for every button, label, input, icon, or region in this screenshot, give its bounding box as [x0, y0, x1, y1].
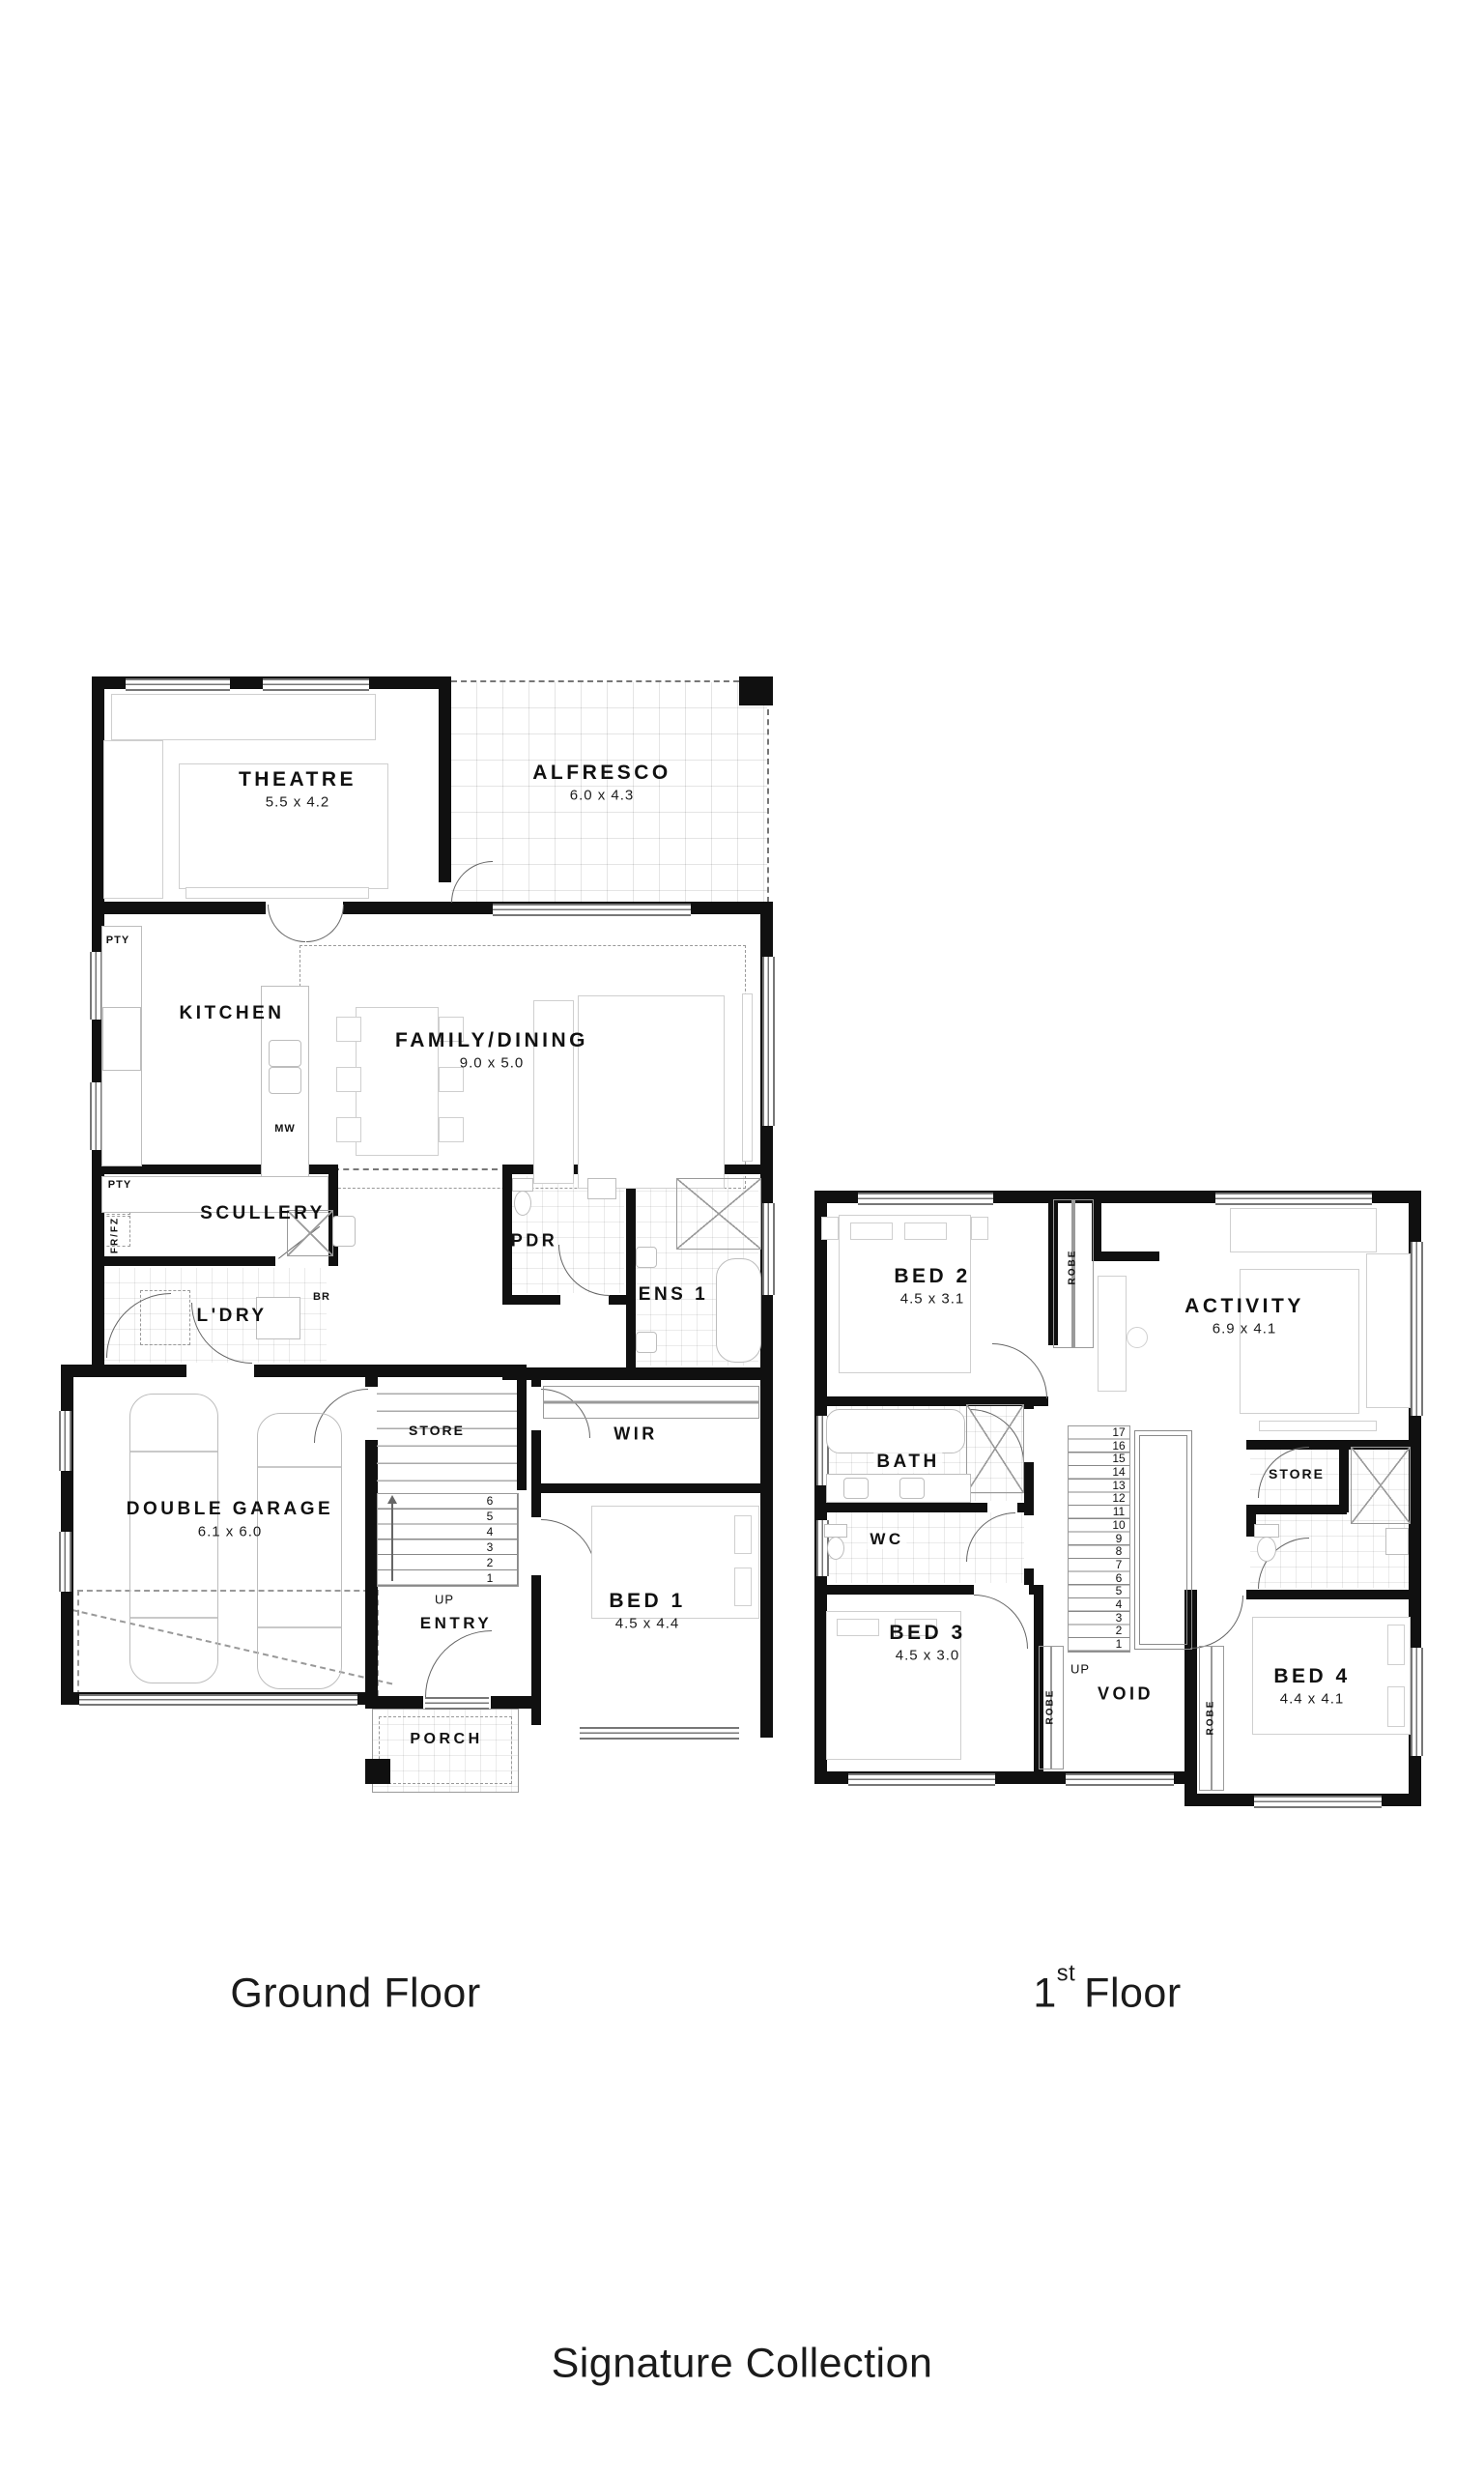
- stair-number: 4: [487, 1525, 494, 1539]
- porch-ceiling-line: [379, 1716, 512, 1784]
- room-label-family-dining: FAMILY/DINING: [395, 1029, 588, 1052]
- ens1-bathtub: [716, 1258, 761, 1363]
- room-label-alfresco: ALFRESCO: [532, 762, 671, 785]
- wall-segment: [531, 1483, 773, 1493]
- tv-unit: [742, 993, 753, 1162]
- wall-segment: [1024, 1462, 1034, 1515]
- stair-number: 11: [1113, 1505, 1125, 1518]
- wall-segment: [365, 1696, 423, 1709]
- bedside-table: [821, 1217, 839, 1240]
- wall-segment: [1017, 1503, 1024, 1512]
- alfresco-post: [739, 676, 773, 705]
- front-door-panel: [425, 1697, 489, 1710]
- stair-number: 2: [487, 1556, 494, 1569]
- wall-segment: [531, 1493, 541, 1517]
- room-label-pdr: PDR: [511, 1231, 558, 1251]
- stair-number: 2: [1116, 1624, 1123, 1637]
- theatre-window: [126, 678, 230, 691]
- ens2-basin: [1385, 1528, 1409, 1555]
- garage-wall-panel: [59, 1532, 71, 1592]
- robe-label: ROBE: [1045, 1689, 1056, 1725]
- room-label-ens1: ENS 1: [639, 1284, 708, 1306]
- pantry-label: PTY: [108, 1179, 131, 1191]
- room-label-kitchen: KITCHEN: [180, 1003, 285, 1024]
- wall-segment: [531, 1367, 541, 1387]
- wall-segment: [531, 1430, 541, 1486]
- robe-label: ROBE: [1068, 1250, 1078, 1285]
- staircase-ground: [377, 1493, 519, 1587]
- theatre-sofa: [111, 694, 376, 740]
- stair-number: 16: [1112, 1439, 1125, 1453]
- bath-tub: [826, 1409, 965, 1453]
- desk-chair: [1127, 1327, 1148, 1348]
- wall-segment: [502, 1295, 560, 1305]
- stair-number: 10: [1112, 1518, 1125, 1532]
- activity-tv-unit: [1259, 1421, 1377, 1431]
- room-dims-theatre: 5.5 x 4.2: [266, 794, 330, 811]
- void-window: [1066, 1773, 1174, 1786]
- stair-number: 1: [487, 1571, 494, 1585]
- activity-window: [1215, 1193, 1372, 1205]
- ens2-toilet-cistern: [1254, 1524, 1279, 1538]
- stair-direction-line: [391, 1504, 393, 1581]
- wall-segment: [61, 1365, 186, 1377]
- room-label-bath: BATH: [873, 1452, 942, 1473]
- room-label-bed1: BED 1: [609, 1590, 685, 1613]
- room-label-ldry: L'DRY: [196, 1306, 267, 1327]
- wall-segment: [491, 1696, 534, 1709]
- up-annotation: UP: [435, 1593, 454, 1607]
- room-label-activity: ACTIVITY: [1184, 1295, 1304, 1318]
- room-label-bed4: BED 4: [1273, 1665, 1350, 1688]
- stair-number: 5: [487, 1510, 494, 1523]
- ground-floor-caption-text: Ground Floor: [230, 1971, 480, 2017]
- room-label-bed3: BED 3: [889, 1622, 965, 1645]
- collection-title: Signature Collection: [552, 2341, 933, 2388]
- ens2-shower: [1351, 1447, 1411, 1524]
- bed2-pillow: [850, 1223, 893, 1240]
- room-dims-activity: 6.9 x 4.1: [1213, 1321, 1277, 1338]
- wall-segment: [92, 902, 266, 914]
- bed1-pillow: [734, 1568, 752, 1606]
- ens1-window: [762, 1203, 775, 1295]
- bed4-side-window: [1411, 1648, 1423, 1756]
- bed4-pillow: [1387, 1625, 1405, 1665]
- room-label-store-first: STORE: [1269, 1466, 1325, 1482]
- pdr-basin: [587, 1178, 616, 1199]
- pantry-label: PTY: [106, 935, 129, 946]
- wall-segment: [1024, 1401, 1034, 1409]
- stair-balustrade: [1134, 1430, 1192, 1650]
- bed4-pillow: [1387, 1686, 1405, 1727]
- first-floor-word: Floor: [1084, 1971, 1181, 2017]
- collection-title-text: Signature Collection: [552, 2341, 933, 2387]
- island-sink: [269, 1067, 301, 1094]
- wall-segment: [1339, 1447, 1349, 1512]
- first-floor-caption: 1stFloor: [1033, 1971, 1181, 2018]
- room-label-wc: WC: [867, 1530, 906, 1549]
- activity-rug: [1240, 1269, 1359, 1414]
- wir-shelving: [543, 1386, 759, 1419]
- garage-car: [257, 1413, 342, 1689]
- stair-number: 6: [487, 1494, 494, 1508]
- room-label-void: VOID: [1098, 1684, 1154, 1705]
- ens2-toilet-bowl: [1257, 1537, 1276, 1562]
- cooktop: [102, 1007, 141, 1071]
- bed4-door-arc: [1190, 1596, 1243, 1649]
- stair-number: 8: [1116, 1544, 1123, 1558]
- bed2-door-arc: [992, 1343, 1047, 1398]
- activity-side-window: [1411, 1242, 1423, 1416]
- room-dims-bed2: 4.5 x 3.1: [900, 1291, 965, 1308]
- garage-door: [79, 1694, 357, 1706]
- wc-toilet-cistern: [824, 1524, 847, 1538]
- room-label-double-garage: DOUBLE GARAGE: [127, 1499, 333, 1520]
- theatre-door-arc: [268, 905, 305, 942]
- family-side-window: [762, 957, 775, 1126]
- alfresco-open-edge-right: [767, 709, 769, 903]
- wall-segment: [517, 1365, 527, 1490]
- bed4-window: [1254, 1796, 1382, 1808]
- front-door-arc: [425, 1630, 492, 1697]
- stair-number: 4: [1116, 1597, 1123, 1611]
- alfresco-open-edge-top: [451, 680, 739, 682]
- bed2-window: [858, 1193, 993, 1205]
- dining-chair: [439, 1117, 464, 1142]
- ens1-basin: [636, 1247, 657, 1268]
- wall-segment: [343, 902, 451, 914]
- room-label-scullery: SCULLERY: [200, 1203, 326, 1224]
- bed3-window: [848, 1773, 995, 1786]
- wall-segment: [92, 1256, 275, 1266]
- room-dims-double-garage: 6.1 x 6.0: [198, 1524, 263, 1540]
- stair-number: 13: [1112, 1479, 1125, 1492]
- broom-label: BR: [313, 1291, 330, 1303]
- robe-label: ROBE: [1206, 1700, 1216, 1736]
- wall-segment: [626, 1295, 636, 1367]
- dining-chair: [336, 1067, 361, 1092]
- ground-floor-caption: Ground Floor: [230, 1971, 480, 2018]
- room-label-wir: WIR: [614, 1424, 658, 1445]
- floorplan-page: 6 5 4 3 2 1 UP THEATRE 5.5 x 4.2 ALFRESC…: [0, 0, 1484, 2474]
- room-label-bed2: BED 2: [894, 1265, 970, 1288]
- activity-sofa: [1366, 1253, 1411, 1408]
- up-annotation: UP: [1070, 1662, 1090, 1677]
- porch-post: [365, 1759, 390, 1784]
- stair-number: 9: [1116, 1532, 1123, 1545]
- stair-number: 14: [1112, 1465, 1125, 1479]
- bedside-table: [971, 1217, 988, 1240]
- theatre-screen-unit: [185, 887, 369, 899]
- garage-wall-panel: [59, 1411, 71, 1471]
- room-dims-bed1: 4.5 x 4.4: [615, 1616, 680, 1632]
- bed3-pillow: [837, 1619, 879, 1636]
- wall-segment: [1246, 1590, 1421, 1599]
- dining-chair: [336, 1017, 361, 1042]
- stair-number: 3: [1116, 1611, 1123, 1625]
- ens1-basin: [636, 1332, 657, 1353]
- room-label-store: STORE: [409, 1423, 465, 1438]
- first-floor-ordinal: st: [1057, 1961, 1075, 1986]
- wall-segment: [1024, 1568, 1034, 1585]
- pdr-toilet-bowl: [514, 1191, 531, 1216]
- bed1-pillow: [734, 1515, 752, 1554]
- bed2-pillow: [904, 1223, 947, 1240]
- bath-shower: [966, 1404, 1024, 1493]
- ens1-shower: [676, 1178, 761, 1250]
- first-floor-plan: ROBE ROBE ROBE 17 16 15 14 13 12 11 10 9…: [800, 1184, 1428, 1817]
- bath-basin: [843, 1478, 869, 1499]
- stair-number: 12: [1112, 1491, 1125, 1505]
- stair-number: 1: [1116, 1637, 1123, 1651]
- wall-segment: [502, 1367, 760, 1380]
- room-dims-bed4: 4.4 x 4.1: [1280, 1691, 1345, 1708]
- room-dims-bed3: 4.5 x 3.0: [896, 1648, 960, 1664]
- activity-sofa: [1230, 1208, 1377, 1252]
- room-dims-family-dining: 9.0 x 5.0: [460, 1055, 525, 1072]
- wall-segment: [814, 1585, 974, 1595]
- room-label-theatre: THEATRE: [239, 768, 357, 791]
- wall-segment: [821, 1503, 987, 1512]
- stair-number: 6: [1116, 1571, 1123, 1585]
- stair-direction-arrow: [387, 1495, 397, 1504]
- island-sink: [269, 1040, 301, 1067]
- microwave-label: MW: [274, 1123, 296, 1135]
- scullery-sink: [332, 1216, 356, 1247]
- family-window: [493, 904, 691, 916]
- wall-segment: [1250, 1505, 1347, 1514]
- bed1-window: [580, 1727, 739, 1740]
- study-desk: [1098, 1276, 1127, 1392]
- theatre-sofa: [103, 740, 163, 899]
- theatre-window: [263, 678, 369, 691]
- fridge-freezer-label: FR/FZ: [110, 1217, 121, 1253]
- bed3-door-arc: [974, 1595, 1028, 1649]
- wc-toilet-bowl: [827, 1537, 844, 1560]
- stair-number: 5: [1116, 1584, 1123, 1597]
- stair-number: 7: [1116, 1558, 1123, 1571]
- bed1-door-arc: [541, 1519, 596, 1574]
- wall-segment: [254, 1365, 517, 1377]
- room-label-porch: PORCH: [410, 1731, 482, 1748]
- bath-basin: [899, 1478, 925, 1499]
- dining-chair: [336, 1117, 361, 1142]
- theatre-door-arc: [306, 905, 344, 942]
- wall-segment: [1092, 1251, 1159, 1261]
- family-rug: [578, 995, 725, 1189]
- stair-number: 17: [1112, 1425, 1125, 1439]
- first-floor-number: 1: [1033, 1971, 1056, 2017]
- stair-number: 3: [487, 1540, 494, 1554]
- stair-number: 15: [1112, 1452, 1125, 1465]
- room-label-entry: ENTRY: [420, 1614, 493, 1633]
- wall-segment: [439, 676, 451, 882]
- pdr-toilet-cistern: [512, 1178, 533, 1192]
- room-dims-alfresco: 6.0 x 4.3: [570, 788, 635, 804]
- ground-floor-plan: 6 5 4 3 2 1 UP THEATRE 5.5 x 4.2 ALFRESC…: [58, 667, 778, 1802]
- family-sofa: [533, 1000, 574, 1184]
